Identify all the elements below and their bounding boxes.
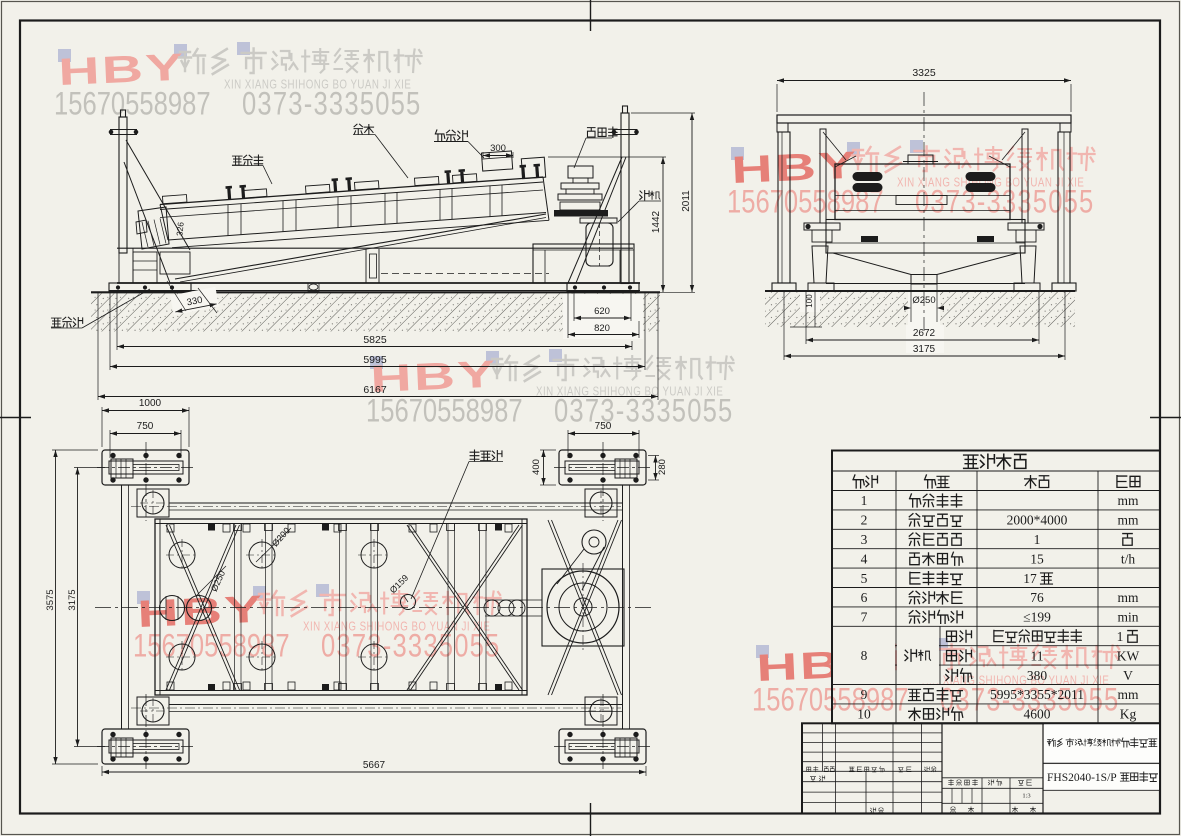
svg-text:620: 620	[594, 306, 610, 317]
svg-text:3175: 3175	[913, 344, 936, 355]
svg-text:5: 5	[861, 571, 868, 586]
svg-text:15670558987: 15670558987	[366, 394, 523, 429]
svg-text:4: 4	[861, 551, 868, 566]
svg-text:6167: 6167	[363, 384, 387, 396]
svg-text:17: 17	[1023, 571, 1037, 586]
svg-text:0373-3335055: 0373-3335055	[242, 87, 421, 122]
svg-text:0373-3335055: 0373-3335055	[554, 394, 733, 429]
svg-text:750: 750	[595, 421, 612, 432]
svg-text:2: 2	[861, 513, 868, 528]
svg-text:8: 8	[861, 648, 868, 663]
svg-text:76: 76	[1030, 590, 1044, 605]
svg-text:0373-3335055: 0373-3335055	[321, 629, 500, 664]
svg-text:15670558987: 15670558987	[54, 87, 211, 122]
svg-text:3175: 3175	[67, 589, 78, 610]
svg-text:380: 380	[1027, 668, 1048, 683]
svg-text:4600: 4600	[1024, 707, 1051, 722]
svg-text:min: min	[1117, 610, 1138, 625]
svg-text:11: 11	[1031, 648, 1044, 663]
svg-text:3325: 3325	[912, 67, 936, 79]
svg-text:1:3: 1:3	[1022, 793, 1030, 800]
svg-text:280: 280	[657, 459, 668, 475]
svg-text:Ø250: Ø250	[912, 295, 935, 306]
svg-text:1: 1	[1117, 629, 1124, 644]
svg-text:820: 820	[594, 323, 610, 334]
svg-text:400: 400	[531, 459, 542, 475]
svg-text:300: 300	[490, 143, 506, 154]
svg-text:Kg: Kg	[1120, 707, 1137, 722]
svg-text:15670558987: 15670558987	[752, 683, 909, 718]
svg-text:mm: mm	[1117, 513, 1139, 528]
svg-text:1000: 1000	[139, 398, 162, 409]
svg-text:15: 15	[1030, 551, 1044, 566]
svg-text:mm: mm	[1117, 493, 1139, 508]
svg-text:10: 10	[857, 707, 871, 722]
svg-text:t/h: t/h	[1121, 551, 1136, 566]
svg-text:1: 1	[861, 493, 868, 508]
svg-text:7: 7	[861, 610, 868, 625]
svg-text:326: 326	[174, 221, 185, 236]
svg-text:3575: 3575	[45, 589, 56, 610]
svg-text:mm: mm	[1117, 687, 1139, 702]
svg-text:1442: 1442	[651, 210, 662, 233]
svg-text:15670558987: 15670558987	[133, 629, 290, 664]
svg-text:1: 1	[1034, 532, 1041, 547]
svg-text:750: 750	[137, 421, 154, 432]
svg-text:2672: 2672	[913, 328, 936, 339]
svg-text:5667: 5667	[363, 760, 386, 771]
svg-text:5825: 5825	[363, 334, 387, 346]
svg-text:KW: KW	[1117, 648, 1140, 663]
svg-text:0373-3335055: 0373-3335055	[915, 185, 1094, 220]
svg-text:V: V	[1123, 668, 1133, 683]
svg-text:FHS2040-1S/P: FHS2040-1S/P	[1047, 772, 1117, 784]
svg-text:mm: mm	[1117, 590, 1139, 605]
svg-text:3: 3	[861, 532, 868, 547]
svg-text:2000*4000: 2000*4000	[1007, 513, 1068, 528]
svg-text:6: 6	[861, 590, 868, 605]
svg-text:5995*3355*2011: 5995*3355*2011	[990, 687, 1084, 702]
svg-text:9: 9	[861, 687, 868, 702]
svg-text:≤199: ≤199	[1023, 610, 1051, 625]
svg-text:5995: 5995	[363, 354, 387, 366]
svg-text:2011: 2011	[681, 190, 692, 212]
